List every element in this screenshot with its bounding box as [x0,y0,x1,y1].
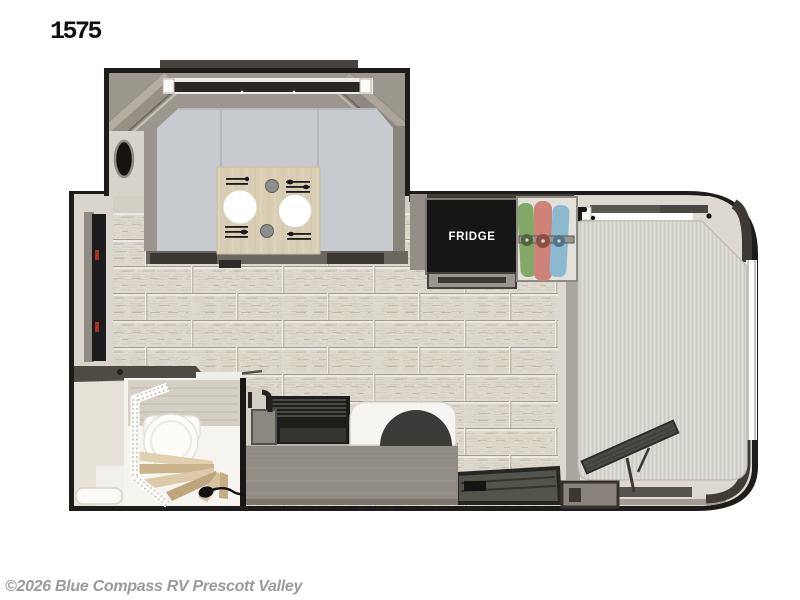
svg-text:©2026 Blue Compass RV Prescott: ©2026 Blue Compass RV Prescott Valley [5,578,304,595]
svg-text:FRIDGE: FRIDGE [448,231,495,243]
svg-text:1575: 1575 [50,17,102,46]
